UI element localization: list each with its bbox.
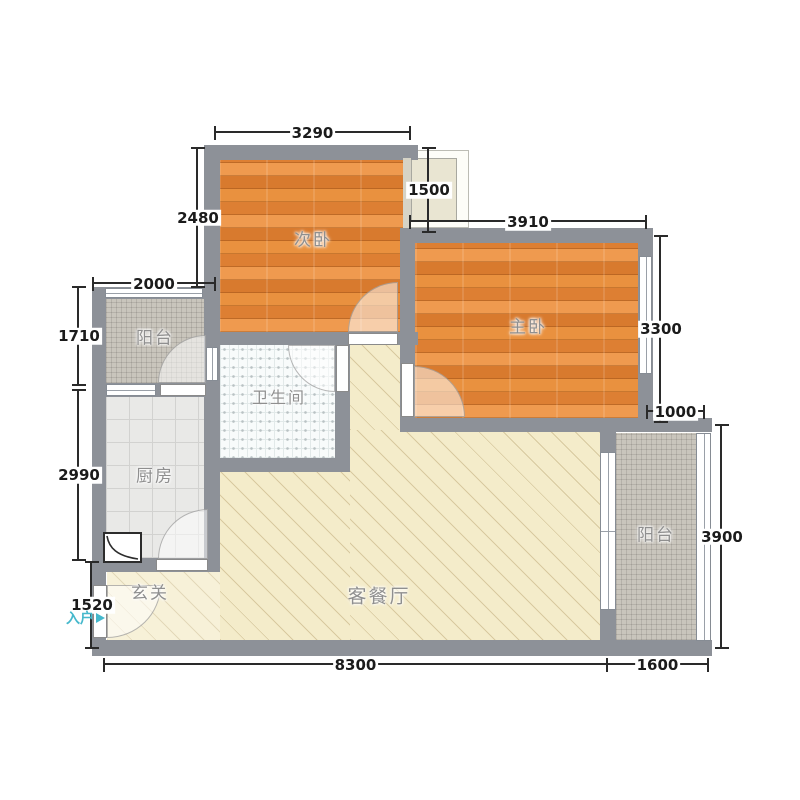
dim-master-bedroom-width: 3910 — [410, 220, 646, 222]
dim-label: 2480 — [175, 209, 221, 226]
dim-label: 3290 — [290, 125, 336, 142]
dim-overhang-width: 1000 — [647, 410, 704, 412]
dim-secondary-bedroom-depth: 2480 — [196, 148, 198, 287]
dim-label: 1710 — [56, 328, 102, 345]
dim-label: 2000 — [131, 276, 177, 293]
dim-entry-depth: 1520 — [90, 562, 92, 648]
dim-balcony-right-depth: 3900 — [720, 425, 722, 648]
balcony-left-door-leaf — [160, 384, 206, 396]
dim-kitchen-depth: 2990 — [77, 390, 79, 560]
room-label-balcony-left: 阳台 — [136, 324, 174, 349]
dim-balcony-right-width: 1600 — [607, 663, 708, 665]
dim-label: 1000 — [653, 404, 699, 421]
dim-label: 8300 — [333, 657, 379, 674]
dim-balcony-left-width: 2000 — [93, 282, 215, 284]
room-label-living-dining: 客餐厅 — [347, 582, 410, 609]
balcony-right-sliding-door — [600, 452, 616, 610]
master-bedroom-door-leaf — [401, 363, 414, 417]
entry-label: 入户 — [66, 608, 94, 628]
bathroom-window — [206, 347, 218, 381]
living-dining-floor — [350, 430, 600, 640]
master-bedroom-window — [639, 256, 652, 374]
room-label-master-bedroom: 主卧 — [509, 313, 547, 338]
entry-arrow-icon — [96, 613, 105, 623]
wall-secondary-top — [204, 145, 418, 160]
living-left-floor — [220, 472, 350, 640]
room-label-entry-hall: 玄关 — [131, 579, 169, 604]
dim-label: 3900 — [699, 528, 745, 545]
sink-curve-icon — [105, 534, 140, 561]
hallway-floor — [350, 345, 400, 430]
dim-secondary-bedroom-width: 3290 — [215, 131, 410, 133]
dim-label: 1500 — [406, 182, 452, 199]
dim-label: 3910 — [505, 214, 551, 231]
bathroom-door-leaf — [336, 345, 349, 392]
dim-label: 1600 — [635, 657, 681, 674]
balcony-left-bottom-window — [106, 384, 156, 396]
room-label-bathroom: 卫生间 — [252, 384, 306, 408]
room-label-kitchen: 厨房 — [136, 462, 174, 487]
kitchen-door-leaf — [156, 559, 208, 571]
wall-bathroom-bottom — [204, 458, 350, 472]
dim-label: 2990 — [56, 467, 102, 484]
wall-bottom — [92, 640, 712, 656]
dim-master-bedroom-depth: 3300 — [659, 236, 661, 422]
entry-marker: 入户 — [66, 608, 105, 628]
secondary-bedroom-door-leaf — [348, 333, 398, 345]
dim-balcony-left-depth: 1710 — [77, 287, 79, 385]
room-label-secondary-bedroom: 次卧 — [294, 226, 332, 251]
room-label-balcony-right: 阳台 — [637, 521, 675, 546]
kitchen-sink-symbol — [103, 532, 142, 563]
dim-overall-bottom-width: 8300 — [104, 663, 607, 665]
floor-plan-canvas: 次卧 主卧 阳台 卫生间 厨房 玄关 客餐厅 阳台 3290 1500 3910… — [0, 0, 800, 800]
dim-label: 3300 — [638, 321, 684, 338]
